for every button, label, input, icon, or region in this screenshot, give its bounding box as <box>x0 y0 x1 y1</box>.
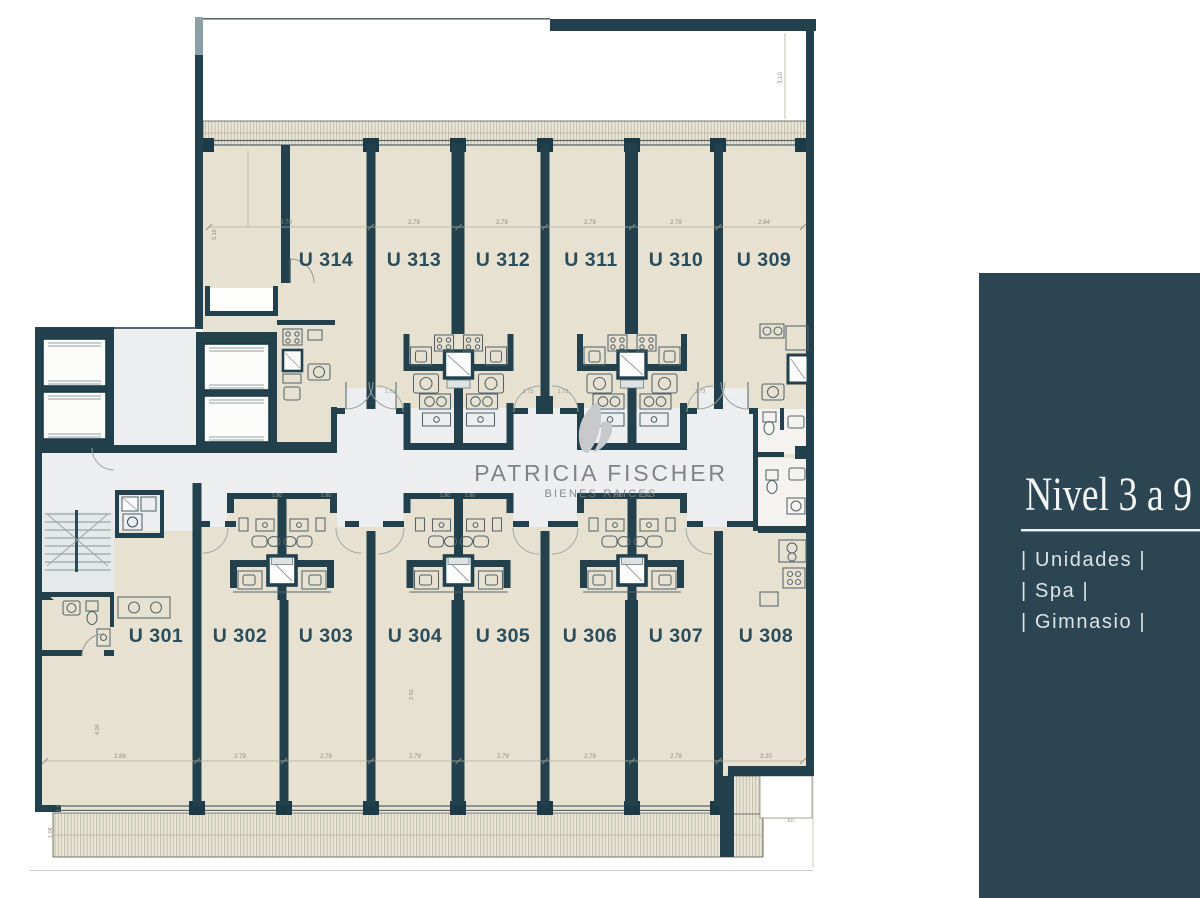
svg-text:U 308: U 308 <box>739 625 794 647</box>
svg-text:2.79: 2.79 <box>584 220 596 226</box>
svg-text:U 307: U 307 <box>649 625 704 647</box>
svg-text:1.73: 1.73 <box>558 389 569 395</box>
svg-text:2.79: 2.79 <box>497 754 509 760</box>
svg-text:3.20: 3.20 <box>760 754 772 760</box>
svg-text:3.10: 3.10 <box>778 72 784 84</box>
svg-text:U 313: U 313 <box>387 249 442 271</box>
svg-text:U 311: U 311 <box>564 249 617 271</box>
svg-text:2.88: 2.88 <box>114 754 126 760</box>
svg-text:U 312: U 312 <box>476 249 531 271</box>
svg-text:U 302: U 302 <box>213 625 268 647</box>
svg-text:U 301: U 301 <box>129 625 184 647</box>
svg-text:U 304: U 304 <box>388 625 443 647</box>
svg-text:2.84: 2.84 <box>758 220 770 226</box>
svg-text:| Gimnasio |: | Gimnasio | <box>1021 611 1146 633</box>
svg-text:Nivel 3 a 9: Nivel 3 a 9 <box>1025 468 1192 521</box>
svg-text:2.79: 2.79 <box>670 754 682 760</box>
svg-text:U 314: U 314 <box>299 249 354 271</box>
svg-text:1.73: 1.73 <box>695 389 706 395</box>
svg-text:BIENES RAICES: BIENES RAICES <box>545 488 658 500</box>
svg-text:U 306: U 306 <box>563 625 618 647</box>
svg-text:5.10: 5.10 <box>212 229 218 240</box>
svg-text:2.79: 2.79 <box>280 220 292 226</box>
svg-text:1.80: 1.80 <box>321 493 332 499</box>
svg-text:1.80: 1.80 <box>465 493 476 499</box>
svg-text:2.79: 2.79 <box>670 220 682 226</box>
svg-text:2.52: 2.52 <box>409 689 415 700</box>
svg-text:2.79: 2.79 <box>320 754 332 760</box>
svg-text:1.80: 1.80 <box>272 493 283 499</box>
svg-text:U 309: U 309 <box>737 249 792 271</box>
svg-text:2.79: 2.79 <box>409 754 421 760</box>
svg-text:PATRICIA FISCHER: PATRICIA FISCHER <box>474 460 728 486</box>
svg-text:U 303: U 303 <box>299 625 354 647</box>
svg-text:1.73: 1.73 <box>385 389 396 395</box>
svg-text:2.79: 2.79 <box>584 754 596 760</box>
svg-text:2.79: 2.79 <box>496 220 508 226</box>
svg-text:.50: .50 <box>786 818 794 824</box>
svg-text:2.79: 2.79 <box>234 754 246 760</box>
svg-text:U 305: U 305 <box>476 625 531 647</box>
svg-text:4.05: 4.05 <box>95 724 101 735</box>
svg-text:1.80: 1.80 <box>440 493 451 499</box>
svg-text:| Unidades |: | Unidades | <box>1021 549 1146 571</box>
svg-text:1.08: 1.08 <box>48 827 54 838</box>
svg-text:| Spa |: | Spa | <box>1021 580 1089 602</box>
svg-text:1.73: 1.73 <box>523 389 534 395</box>
svg-text:U 310: U 310 <box>649 249 704 271</box>
svg-text:2.79: 2.79 <box>408 220 420 226</box>
